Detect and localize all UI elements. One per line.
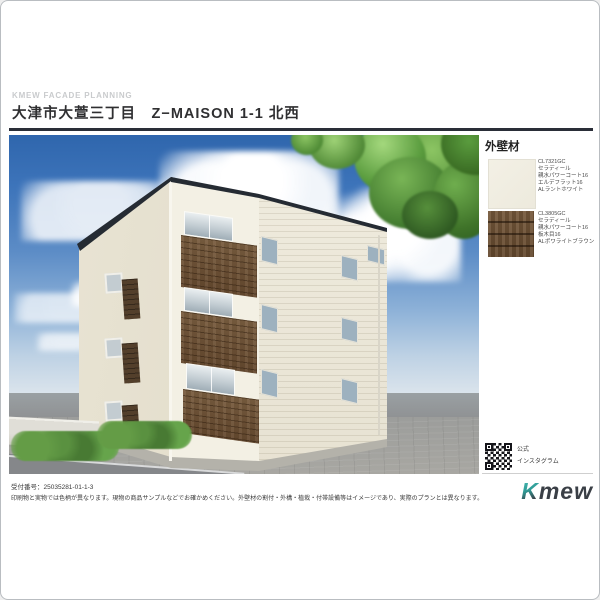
window <box>104 337 123 358</box>
sidebar-heading: 外壁材 <box>485 138 520 154</box>
disclaimer-text: 印刷物と実物では色柄が異なります。現物の商品サンプルなどでお確かめください。外壁… <box>11 493 483 502</box>
material-line: 親水パワーコート16 <box>538 173 598 180</box>
kmew-logo-k: K <box>521 478 539 504</box>
material-spec-2: CL3805GC セラディール 親水パワーコート16 板木目16 ALポワライト… <box>538 211 598 246</box>
material-swatch-white <box>488 159 536 209</box>
corner-trim <box>169 181 172 461</box>
material-line: 板木目16 <box>538 232 598 239</box>
balcony-side-recess <box>122 278 141 319</box>
window <box>261 304 278 333</box>
tree-foliage <box>402 191 458 239</box>
qr-label-official: 公式 <box>517 444 529 453</box>
material-code: CL3805GC <box>538 211 598 218</box>
sidebar-divider <box>482 473 593 474</box>
window <box>261 369 278 398</box>
qr-code-icon <box>485 443 512 470</box>
material-line: セラディール <box>538 218 598 225</box>
material-line: ALラントホワイト <box>538 187 598 194</box>
window <box>341 255 358 281</box>
qr-finder <box>485 443 493 451</box>
material-line: セラディール <box>538 166 598 173</box>
window <box>104 400 123 421</box>
material-line: ALポワライトブラウン <box>538 239 598 246</box>
material-line: 親水パワーコート16 <box>538 225 598 232</box>
qr-label-instagram: インスタグラム <box>517 456 559 465</box>
window <box>341 378 358 404</box>
building-render <box>9 135 479 474</box>
window <box>261 236 278 265</box>
balcony-wood-panel <box>183 389 259 444</box>
material-line: エルデフラット16 <box>538 180 598 187</box>
shrub-hedge <box>97 421 192 449</box>
receipt-number: 受付番号：25035281-01-1-3 <box>11 481 93 491</box>
material-code: CL7321GC <box>538 159 598 166</box>
window <box>104 272 123 293</box>
material-spec-1: CL7321GC セラディール 親水パワーコート16 エルデフラット16 ALラ… <box>538 159 598 194</box>
eyebrow-text: KMEW FACADE PLANNING <box>12 91 132 100</box>
window <box>341 317 358 343</box>
title-divider <box>9 128 593 131</box>
kmew-logo: Kmew <box>509 478 593 505</box>
material-swatch-wood <box>488 211 534 257</box>
qr-finder <box>504 443 512 451</box>
facade-planning-sheet: KMEW FACADE PLANNING 大津市大萱三丁目 Z−MAISON 1… <box>0 0 600 600</box>
balcony-side-recess <box>122 342 141 383</box>
kmew-logo-rest: mew <box>539 478 593 504</box>
window <box>367 245 385 265</box>
page-title: 大津市大萱三丁目 Z−MAISON 1-1 北西 <box>12 102 300 123</box>
qr-finder <box>485 462 493 470</box>
downspout-pipe <box>378 235 380 435</box>
